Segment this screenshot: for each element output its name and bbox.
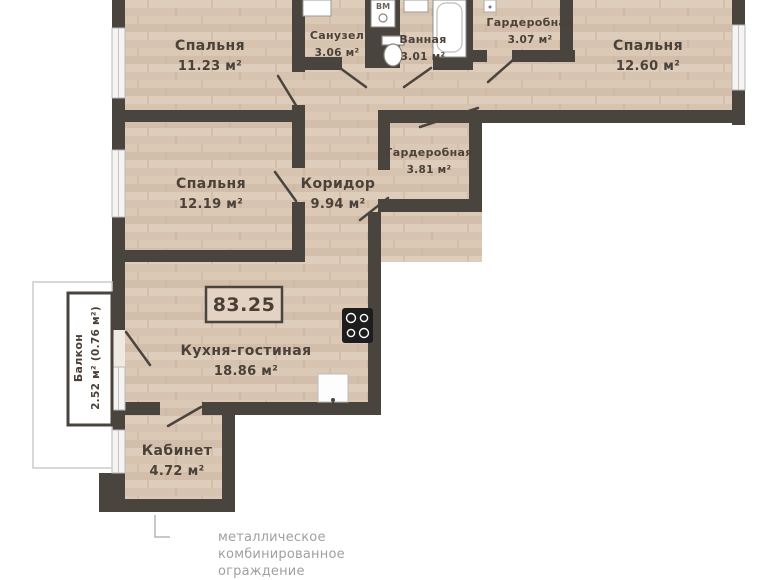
svg-text:Ванная: Ванная [399,33,446,46]
svg-text:3.07 м²: 3.07 м² [508,34,553,46]
floor-bedroom-2-notch [460,50,745,112]
svg-text:11.23 м²: 11.23 м² [178,59,242,74]
window-bedroom-1 [112,28,125,98]
total-area-value: 83.25 [213,294,276,316]
svg-text:4.72 м²: 4.72 м² [149,464,204,479]
svg-text:Коридор: Коридор [301,176,376,192]
window-balcony [112,367,125,410]
annotation-line-1: металлическое [218,530,326,545]
svg-text:Кабинет: Кабинет [142,443,213,459]
annotation-line-3: ограждение [218,564,305,579]
railing-annotation: металлическое комбинированное ограждение… [155,515,391,580]
washing-machine-icon: ВМ [371,0,395,27]
floor-plan-svg: ВМ [0,0,780,580]
svg-text:Спальня: Спальня [176,176,246,192]
balcony: Балкон 2.52 м² (0.76 м²) [33,282,112,468]
svg-text:3.06 м²: 3.06 м² [315,47,360,59]
svg-text:Гардеробная: Гардеробная [385,146,472,159]
window-cabinet [112,430,125,473]
light-fixture-icon [484,0,496,12]
balcony-door-opening [112,330,125,367]
annotation-line-2: комбинированное [218,547,345,562]
vm-label: ВМ [376,2,390,11]
svg-text:Гардеробная: Гардеробная [486,16,573,29]
svg-text:18.86 м²: 18.86 м² [214,364,278,379]
svg-text:Спальня: Спальня [175,38,245,54]
svg-text:9.94 м²: 9.94 м² [310,197,365,212]
svg-text:Кухня-гостиная: Кухня-гостиная [181,343,312,359]
svg-text:Спальня: Спальня [613,38,683,54]
total-area-badge: 83.25 [206,287,282,322]
svg-text:3.81 м²: 3.81 м² [407,164,452,176]
svg-text:12.19 м²: 12.19 м² [179,197,243,212]
balcony-area: 2.52 м² (0.76 м²) [90,306,102,410]
svg-text:Санузел: Санузел [310,29,364,42]
cooktop-icon [342,308,373,343]
balcony-name: Балкон [72,334,85,382]
leader-line [155,515,170,537]
window-bedroom-3 [112,150,125,217]
sink-icon [404,0,428,12]
svg-text:3.01 м²: 3.01 м² [401,51,446,63]
bathtub-icon [433,0,466,57]
sink-icon [303,0,331,16]
svg-text:12.60 м²: 12.60 м² [616,59,680,74]
window-bedroom-2 [732,25,745,90]
floor-plan-canvas: ВМ [0,0,780,580]
